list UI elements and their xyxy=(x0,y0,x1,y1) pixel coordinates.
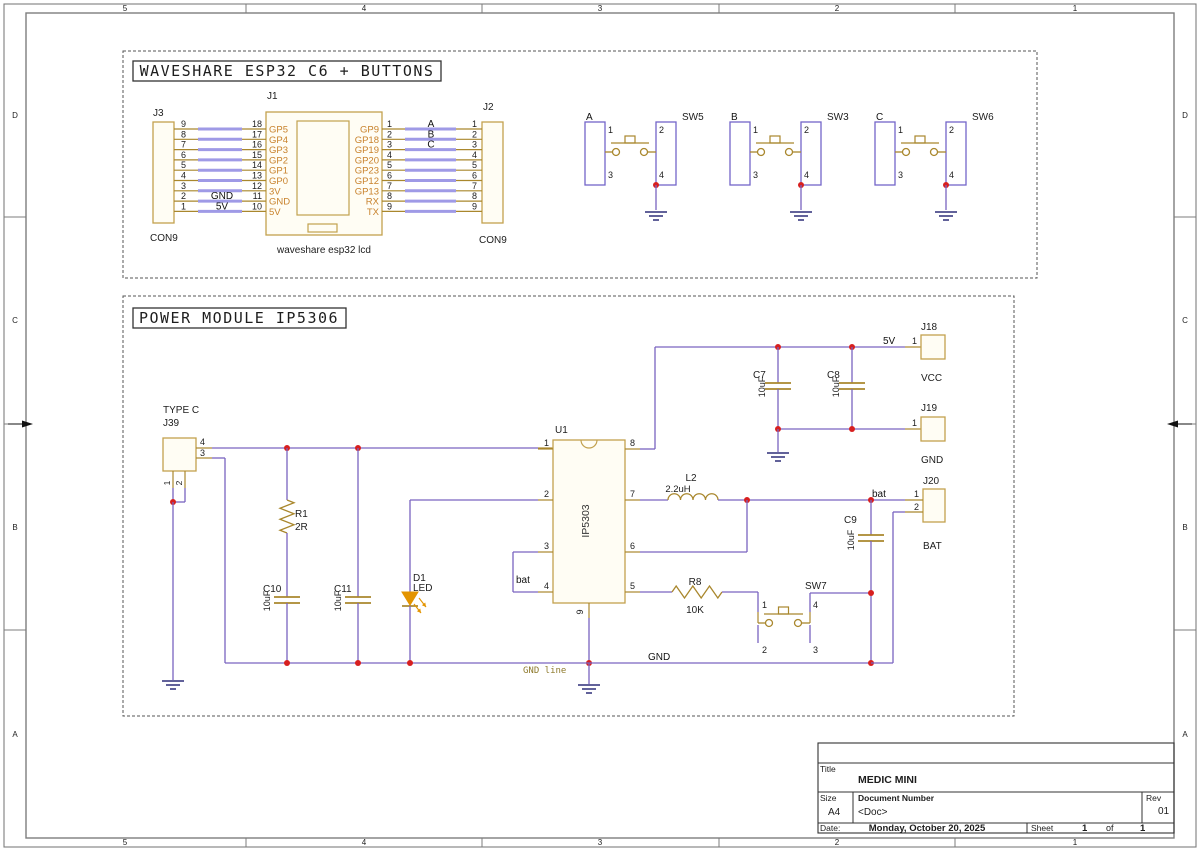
schematic-page: 5544332211DDCCBBAATitleMEDIC MINISizeA4D… xyxy=(0,0,1200,851)
part-value: 10uF xyxy=(262,590,272,611)
pin-number: 1 xyxy=(762,600,767,610)
pin-number: 9 xyxy=(575,609,585,614)
refdes: J1 xyxy=(267,91,278,102)
pin-number: 1 xyxy=(912,418,917,428)
part-value: 10K xyxy=(686,605,704,616)
pin-number: 5 xyxy=(387,160,392,170)
pin-number: 2 xyxy=(804,125,809,135)
pin-number: 6 xyxy=(630,541,635,551)
pin-number: 1 xyxy=(914,489,919,499)
sheet-total: 1 xyxy=(1140,823,1146,834)
pin-number: 3 xyxy=(472,140,477,150)
pin-number: 8 xyxy=(472,191,477,201)
connector-j20[interactable] xyxy=(923,489,945,522)
sheet-of-label: of xyxy=(1106,823,1114,833)
connector-j39[interactable] xyxy=(163,438,196,471)
pin-name: 5V xyxy=(269,207,281,218)
resistor-symbol[interactable] xyxy=(280,500,294,533)
zone-label: 5 xyxy=(123,4,128,13)
pin-number: 3 xyxy=(181,181,186,191)
zone-label: 5 xyxy=(123,838,128,847)
capacitor-symbol[interactable] xyxy=(858,535,884,541)
net-label: GND xyxy=(648,652,670,663)
section-title: POWER MODULE IP5306 xyxy=(139,309,339,327)
junction-dot xyxy=(407,660,413,666)
pin-number: 4 xyxy=(387,150,392,160)
pin-number: 2 xyxy=(181,191,186,201)
sheet-label: Sheet xyxy=(1031,823,1054,833)
part-value: 10uF xyxy=(757,376,767,397)
pin-number: 16 xyxy=(252,140,262,150)
part-value: waveshare esp32 lcd xyxy=(276,245,371,256)
part-value: LED xyxy=(413,583,432,594)
title-label: Title xyxy=(820,764,836,774)
pin-number: 2 xyxy=(174,480,184,485)
switch-body[interactable] xyxy=(585,122,605,185)
pin-number: 4 xyxy=(544,581,549,591)
pin-number: 9 xyxy=(387,201,392,211)
net-label: C xyxy=(876,112,883,123)
ground-symbol xyxy=(935,212,957,220)
part-value: 10uF xyxy=(831,376,841,397)
pin-number: 2 xyxy=(914,502,919,512)
junction-dot xyxy=(355,660,361,666)
junction-dot xyxy=(868,590,874,596)
part-value: 2R xyxy=(295,522,308,533)
pin-number: 7 xyxy=(472,181,477,191)
net-label: A xyxy=(586,112,593,123)
net-label: bat xyxy=(516,575,530,586)
refdes: C9 xyxy=(844,515,857,526)
pin-number: 1 xyxy=(912,336,917,346)
pin-number: 2 xyxy=(762,645,767,655)
pin-number: 13 xyxy=(252,171,262,181)
zone-label: 2 xyxy=(835,838,840,847)
pin-number: 1 xyxy=(898,125,903,135)
pin-number: 18 xyxy=(252,119,262,129)
connector-name: VCC xyxy=(921,373,942,384)
capacitor-symbol[interactable] xyxy=(839,383,865,389)
part-value: 2.2uH xyxy=(665,484,690,495)
pin-number: 1 xyxy=(472,119,477,129)
pin-number: 1 xyxy=(544,438,549,448)
junction-dot xyxy=(284,660,290,666)
center-arrow xyxy=(1167,421,1178,428)
pin-number: 5 xyxy=(181,160,186,170)
pin-number: 6 xyxy=(387,171,392,181)
net-label: GND line xyxy=(523,666,566,676)
refdes: J3 xyxy=(153,108,164,119)
capacitor-symbol[interactable] xyxy=(765,383,791,389)
title-block xyxy=(818,743,1174,833)
switch-contacts[interactable] xyxy=(750,136,801,156)
connector-name: CON9 xyxy=(479,235,507,246)
refdes: J39 xyxy=(163,418,180,429)
zone-label: C xyxy=(1182,316,1188,325)
switch-body[interactable] xyxy=(730,122,750,185)
zone-label: A xyxy=(1182,730,1188,739)
pin-number: 3 xyxy=(753,170,758,180)
net-label: C xyxy=(427,140,434,151)
pin-number: 1 xyxy=(162,480,172,485)
refdes: SW3 xyxy=(827,112,849,123)
refdes: SW7 xyxy=(805,581,827,592)
pin-number: 2 xyxy=(472,129,477,139)
pin-number: 7 xyxy=(630,489,635,499)
switch-contacts[interactable] xyxy=(605,136,656,156)
ground-symbol xyxy=(645,212,667,220)
rev-label: Rev xyxy=(1146,793,1162,803)
connector-j2[interactable] xyxy=(482,122,503,223)
pin-number: 17 xyxy=(252,129,262,139)
refdes: L2 xyxy=(685,473,697,484)
zone-label: 3 xyxy=(598,4,603,13)
zone-label: 1 xyxy=(1073,4,1078,13)
pin-number: 5 xyxy=(630,581,635,591)
capacitor-symbol[interactable] xyxy=(274,597,300,603)
pin-number: 5 xyxy=(472,160,477,170)
pin-number: 9 xyxy=(472,201,477,211)
pin-number: 2 xyxy=(659,125,664,135)
pin-number: 4 xyxy=(472,150,477,160)
zone-label: A xyxy=(12,730,18,739)
pin-number: 4 xyxy=(949,170,954,180)
connector-j18[interactable] xyxy=(921,335,945,359)
refdes: R8 xyxy=(689,577,702,588)
net-label: bat xyxy=(872,489,886,500)
pin-number: 6 xyxy=(181,150,186,160)
sheet-size: A4 xyxy=(828,807,841,818)
zone-label: 4 xyxy=(362,4,367,13)
pin-number: 9 xyxy=(181,119,186,129)
net-label: 5V xyxy=(216,201,229,212)
pin-number: 6 xyxy=(472,171,477,181)
net-label: 5V xyxy=(883,336,896,347)
refdes: U1 xyxy=(555,425,568,436)
zone-label: C xyxy=(12,316,18,325)
pin-number: 12 xyxy=(252,181,262,191)
zone-label: B xyxy=(12,523,17,532)
pin-number: 3 xyxy=(387,140,392,150)
refdes: J19 xyxy=(921,403,938,414)
pin-number: 1 xyxy=(608,125,613,135)
pin-number: 3 xyxy=(544,541,549,551)
zone-label: D xyxy=(1182,111,1188,120)
pin-number: 1 xyxy=(387,119,392,129)
pin-number: 8 xyxy=(387,191,392,201)
switch-contacts[interactable] xyxy=(895,136,946,156)
connector-name: BAT xyxy=(923,541,942,552)
connector-j3[interactable] xyxy=(153,122,174,223)
net-label: B xyxy=(731,112,738,123)
doc-number-label: Document Number xyxy=(858,793,935,803)
zone-label: 4 xyxy=(362,838,367,847)
connector-name: TYPE C xyxy=(163,405,199,416)
center-arrow xyxy=(22,421,33,428)
zone-label: D xyxy=(12,111,18,120)
connector-name: GND xyxy=(921,455,943,466)
pin-number: 4 xyxy=(200,437,205,447)
doc-number: <Doc> xyxy=(858,807,888,818)
ground-symbol xyxy=(790,212,812,220)
pin-number: 14 xyxy=(252,160,262,170)
size-label: Size xyxy=(820,793,837,803)
part-value: 10uF xyxy=(333,590,343,611)
pin-number: 2 xyxy=(387,129,392,139)
section-title: WAVESHARE ESP32 C6 + BUTTONS xyxy=(140,62,435,80)
zone-label: 3 xyxy=(598,838,603,847)
refdes: J2 xyxy=(483,102,494,113)
zone-label: 2 xyxy=(835,4,840,13)
zone-label: 1 xyxy=(1073,838,1078,847)
part-value: IP5303 xyxy=(580,504,592,537)
pin-number: 1 xyxy=(753,125,758,135)
junction-dot xyxy=(849,426,855,432)
pin-number: 4 xyxy=(813,600,818,610)
pin-number: 15 xyxy=(252,150,262,160)
pin-name: TX xyxy=(367,207,380,218)
refdes: J20 xyxy=(923,476,940,487)
pin-number: 3 xyxy=(608,170,613,180)
refdes: J18 xyxy=(921,322,938,333)
part-value: 10uF xyxy=(846,529,856,550)
pin-number: 4 xyxy=(181,171,186,181)
schematic-canvas[interactable]: 5544332211DDCCBBAATitleMEDIC MINISizeA4D… xyxy=(0,0,1200,851)
pin-number: 3 xyxy=(813,645,818,655)
pin-number: 8 xyxy=(630,438,635,448)
pin-number: 8 xyxy=(181,129,186,139)
rev-value: 01 xyxy=(1158,806,1170,817)
pin-number: 7 xyxy=(181,140,186,150)
pin-number: 10 xyxy=(252,201,262,211)
sheet-number: 1 xyxy=(1082,823,1088,834)
pin-number: 2 xyxy=(949,125,954,135)
refdes: R1 xyxy=(295,509,308,520)
refdes: SW5 xyxy=(682,112,704,123)
ground-symbol xyxy=(767,453,789,461)
date-value: Monday, October 20, 2025 xyxy=(869,823,986,834)
pin-number: 2 xyxy=(544,489,549,499)
zone-label: B xyxy=(1182,523,1187,532)
ground-symbol xyxy=(162,681,184,689)
document-title: MEDIC MINI xyxy=(858,774,917,786)
pin-number: 7 xyxy=(387,181,392,191)
connector-name: CON9 xyxy=(150,233,178,244)
capacitor-symbol[interactable] xyxy=(345,597,371,603)
ground-symbol xyxy=(578,685,600,693)
pin-number: 1 xyxy=(181,201,186,211)
led-symbol[interactable] xyxy=(402,592,426,613)
pin-number: 11 xyxy=(253,191,262,201)
switch-body[interactable] xyxy=(875,122,895,185)
pin-number: 4 xyxy=(804,170,809,180)
pin-number: 3 xyxy=(200,448,205,458)
refdes: SW6 xyxy=(972,112,994,123)
connector-j19[interactable] xyxy=(921,417,945,441)
pin-number: 3 xyxy=(898,170,903,180)
pin-number: 4 xyxy=(659,170,664,180)
date-label: Date: xyxy=(820,823,840,833)
